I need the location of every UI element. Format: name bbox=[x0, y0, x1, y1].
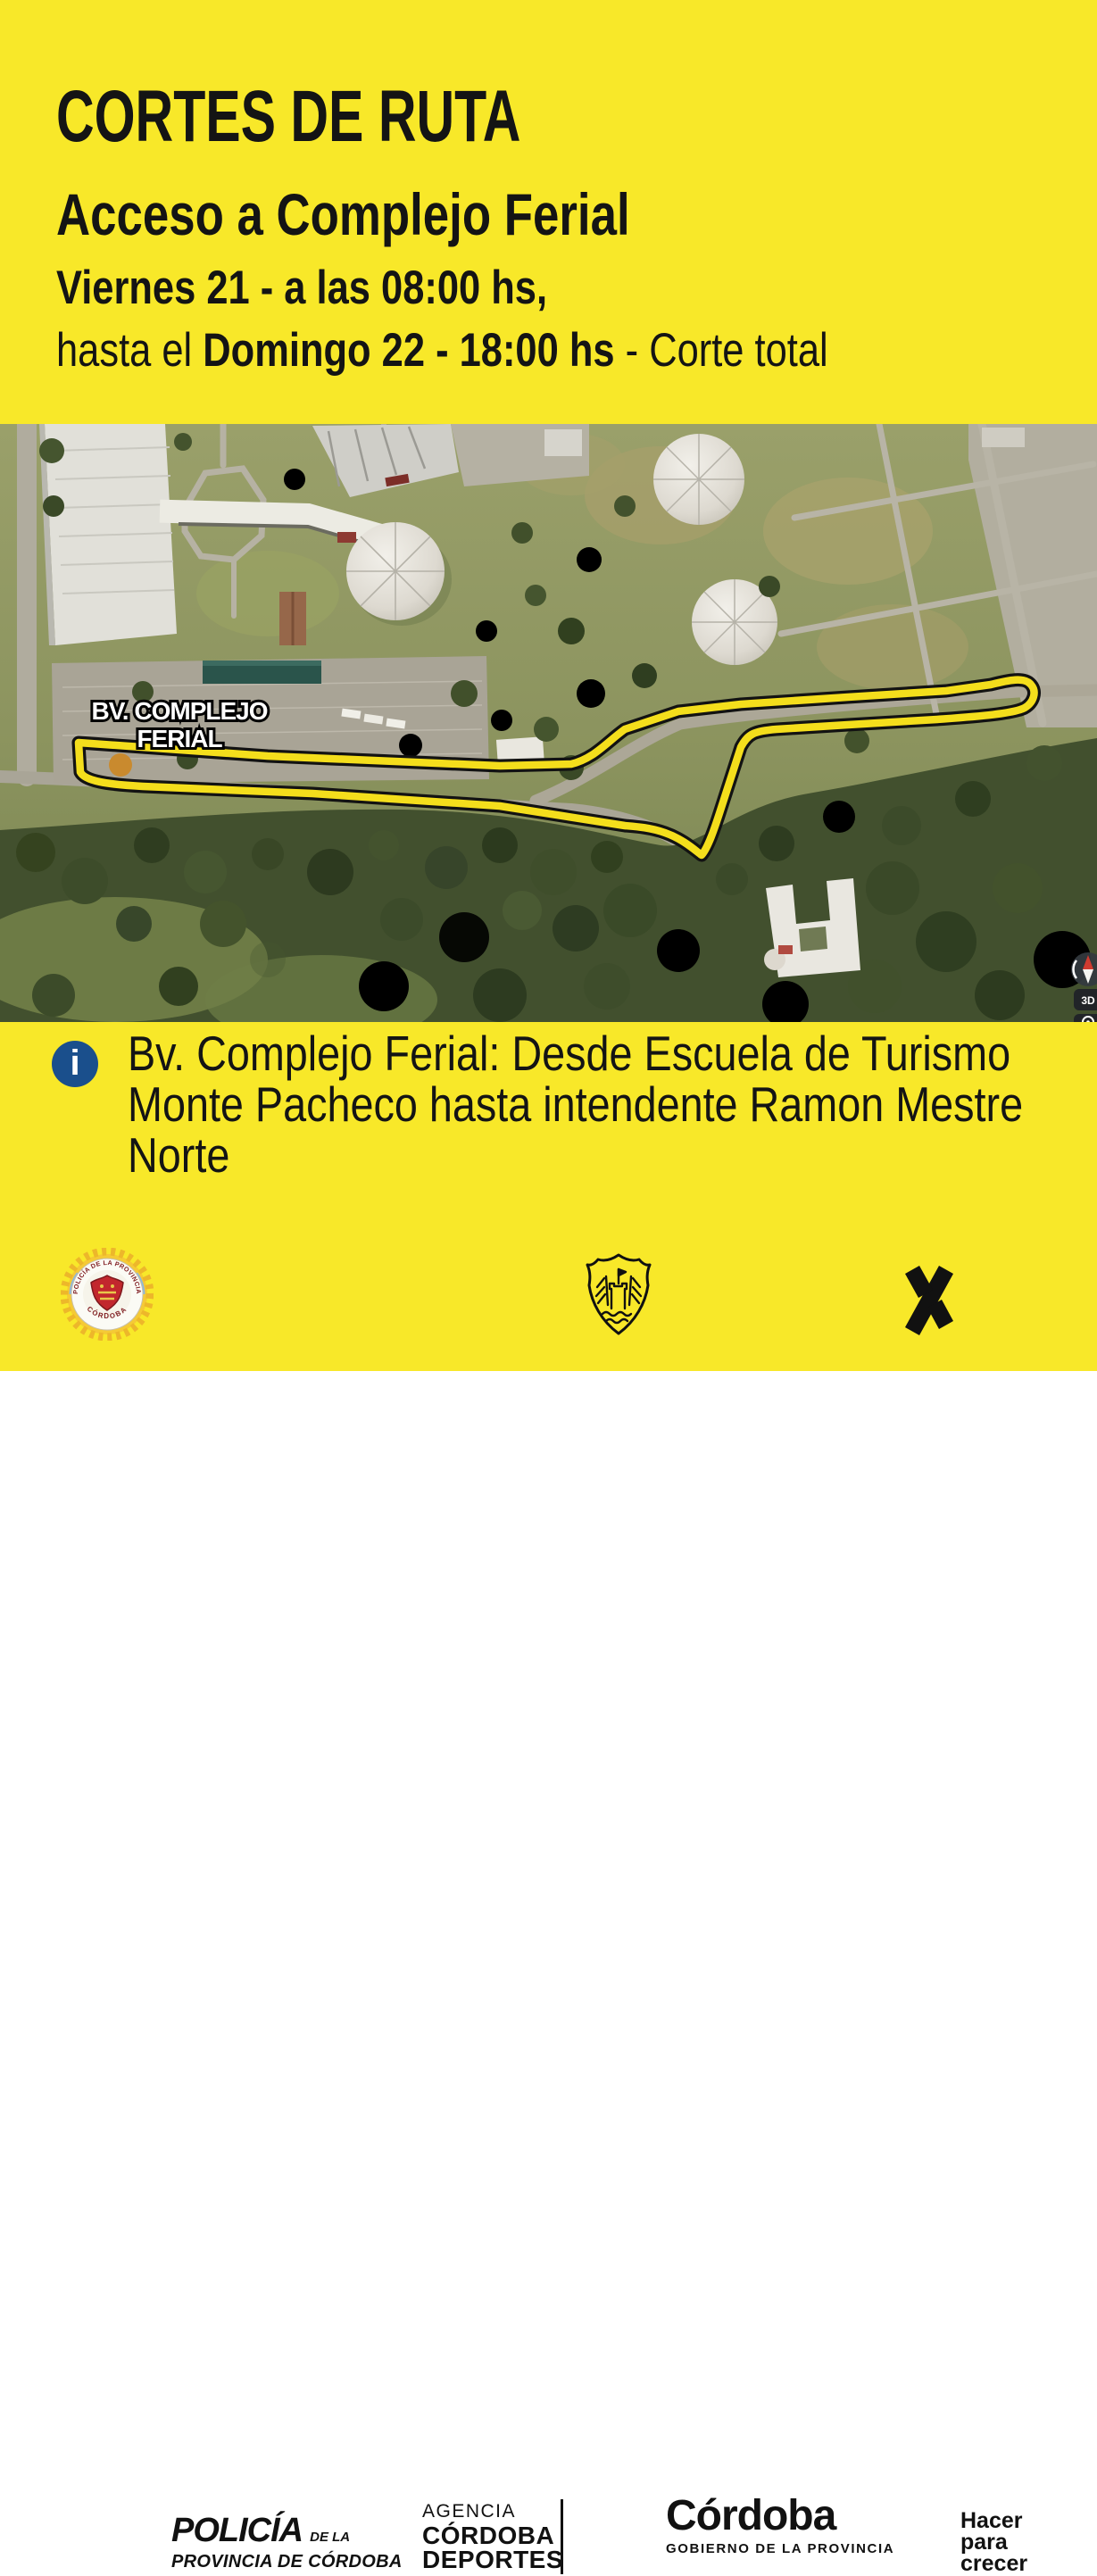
police-name: POLICÍA bbox=[171, 2512, 303, 2549]
info-icon: i bbox=[52, 1041, 98, 1087]
schedule-suffix: - Corte total bbox=[615, 324, 828, 377]
police-subname: PROVINCIA DE CÓRDOBA bbox=[171, 2552, 403, 2572]
footer-divider bbox=[561, 2499, 563, 2574]
road-label-line1: BV. COMPLEJO bbox=[91, 697, 267, 725]
info-line-3: Norte bbox=[128, 1130, 1023, 1181]
police-name-suffix: DE LA bbox=[310, 2530, 350, 2545]
agencia-line1: AGENCIA bbox=[422, 2499, 563, 2523]
3d-button[interactable]: 3D bbox=[1074, 989, 1097, 1010]
gobierno-subtitle: GOBIERNO DE LA PROVINCIA bbox=[666, 2541, 894, 2556]
info-line-1: Bv. Complejo Ferial: Desde Escuela de Tu… bbox=[128, 1028, 1023, 1079]
info-line-2: Monte Pacheco hasta intendente Ramon Mes… bbox=[128, 1079, 1023, 1130]
cordoba-crest-icon bbox=[584, 1251, 653, 1339]
agencia-line3: DEPORTES bbox=[422, 2547, 563, 2572]
cordoba-wordmark: Córdoba bbox=[666, 2494, 894, 2539]
page-title: CORTES DE RUTA bbox=[56, 75, 520, 159]
road-label-line2: FERIAL bbox=[137, 725, 222, 752]
satellite-map-canvas: BV. COMPLEJO FERIAL 3D bbox=[0, 424, 1097, 1022]
info-text: Bv. Complejo Ferial: Desde Escuela de Tu… bbox=[128, 1028, 1023, 1181]
schedule-prefix: hasta el bbox=[56, 324, 203, 377]
footer-logos: POLICÍA DE LA PROVINCIA CÓRDOBA POLICÍAD… bbox=[0, 1241, 1097, 1357]
slogan-text: Hacer para crecer bbox=[960, 2510, 1027, 2574]
hacer-x-icon bbox=[903, 1264, 955, 1337]
my-location-button[interactable] bbox=[1074, 1014, 1097, 1022]
road-closure-poster: CORTES DE RUTA Acceso a Complejo Ferial … bbox=[0, 0, 1097, 1371]
info-icon-glyph: i bbox=[70, 1043, 79, 1083]
slogan-line2: para bbox=[960, 2531, 1027, 2553]
schedule-bold: Domingo 22 - 18:00 hs bbox=[203, 324, 614, 377]
police-badge-logo: POLICÍA DE LA PROVINCIA CÓRDOBA bbox=[61, 1248, 154, 1341]
schedule-line-2: hasta el Domingo 22 - 18:00 hs - Corte t… bbox=[56, 323, 828, 378]
satellite-map: BV. COMPLEJO FERIAL 3D bbox=[0, 424, 1097, 1022]
subtitle: Acceso a Complejo Ferial bbox=[56, 180, 630, 248]
agencia-line2: CÓRDOBA bbox=[422, 2523, 563, 2547]
3d-button-label: 3D bbox=[1081, 994, 1095, 1007]
slogan-line3: crecer bbox=[960, 2553, 1027, 2574]
agencia-deportes-logo: AGENCIA CÓRDOBA DEPORTES bbox=[422, 2499, 563, 2572]
police-wordmark: POLICÍADE LA PROVINCIA DE CÓRDOBA bbox=[171, 2512, 403, 2572]
schedule-line-1: Viernes 21 - a las 08:00 hs, bbox=[56, 261, 547, 315]
slogan-line1: Hacer bbox=[960, 2510, 1027, 2531]
cordoba-gobierno-logo: Córdoba GOBIERNO DE LA PROVINCIA bbox=[666, 2494, 894, 2556]
